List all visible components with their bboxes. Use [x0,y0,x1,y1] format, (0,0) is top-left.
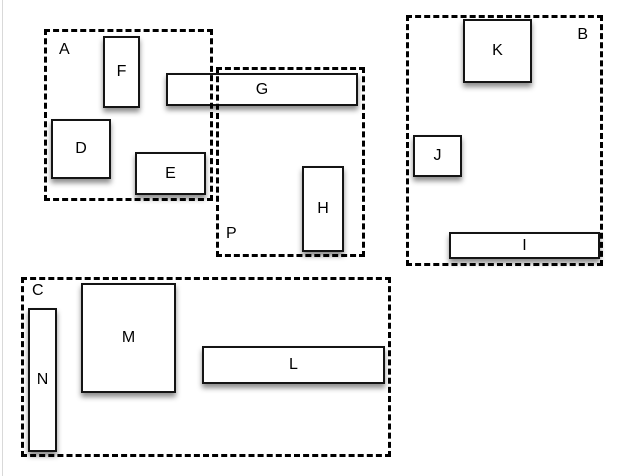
diagram-canvas: D E F G H I J K L M N A P B C [0,0,623,476]
group-frame-B[interactable]: B [406,15,603,266]
group-frame-A[interactable]: A [44,29,213,201]
group-C-label: C [32,283,44,299]
group-B-label: B [577,27,588,43]
group-A-label: A [59,42,70,58]
group-frame-C[interactable]: C [21,277,391,457]
group-P-label: P [226,226,237,242]
window-edge-line [2,0,3,476]
group-frame-P[interactable]: P [216,67,365,257]
